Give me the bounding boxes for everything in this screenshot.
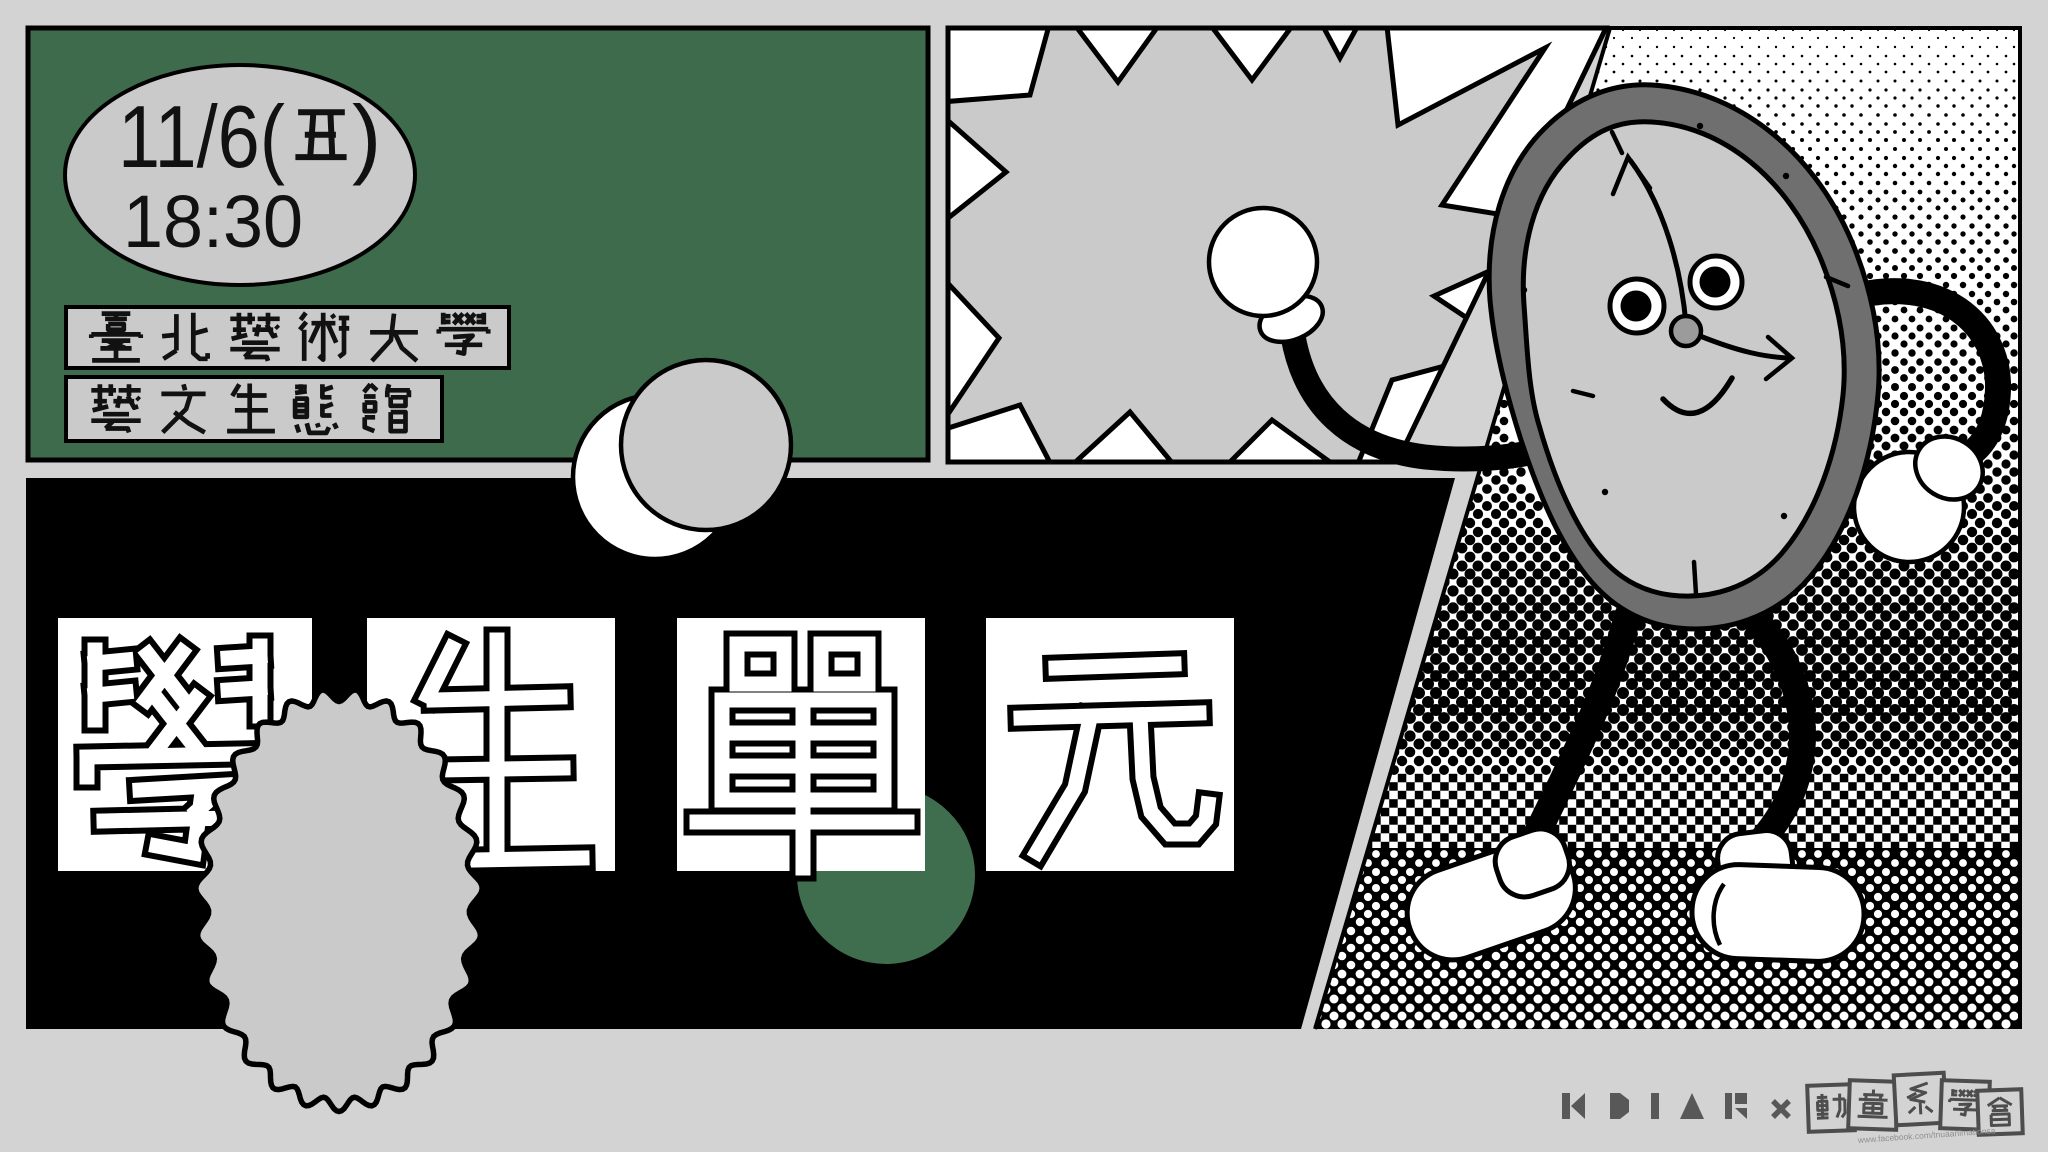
svg-text:): ) (352, 87, 381, 186)
svg-text:11/6(: 11/6( (118, 87, 285, 186)
svg-text:18:30: 18:30 (123, 180, 303, 263)
